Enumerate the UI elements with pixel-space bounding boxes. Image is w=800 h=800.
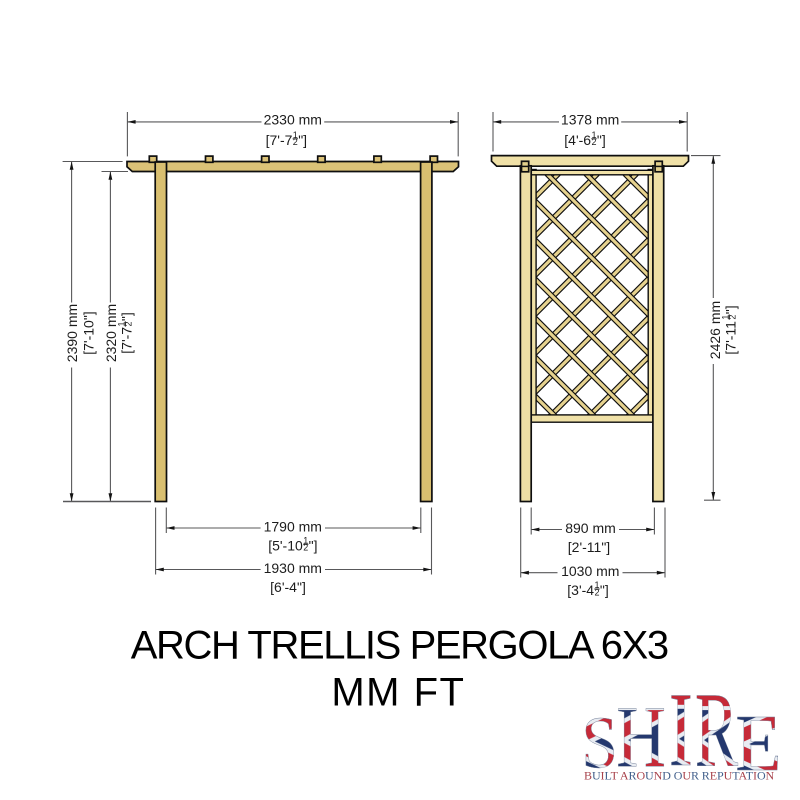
svg-text:[6'-4"]: [6'-4"] bbox=[270, 579, 306, 595]
svg-text:[7'-7: [7'-7 bbox=[118, 327, 134, 354]
svg-text:"]: "] bbox=[722, 305, 738, 314]
svg-text:2: 2 bbox=[124, 321, 134, 326]
svg-text:MM FT: MM FT bbox=[331, 671, 465, 715]
svg-text:2320 mm: 2320 mm bbox=[103, 304, 119, 362]
svg-text:ARCH TRELLIS PERGOLA 6X3: ARCH TRELLIS PERGOLA 6X3 bbox=[131, 624, 668, 668]
svg-text:"]: "] bbox=[118, 312, 134, 321]
svg-text:1378 mm: 1378 mm bbox=[561, 112, 619, 128]
svg-text:1930 mm: 1930 mm bbox=[264, 560, 322, 576]
svg-text:"]: "] bbox=[597, 132, 606, 148]
svg-text:2426 mm: 2426 mm bbox=[707, 301, 723, 359]
svg-text:"]: "] bbox=[600, 582, 609, 598]
svg-text:2390 mm: 2390 mm bbox=[64, 304, 80, 362]
svg-text:"]: "] bbox=[298, 132, 307, 148]
svg-text:2330 mm: 2330 mm bbox=[264, 112, 322, 128]
svg-text:[7'-11: [7'-11 bbox=[722, 321, 738, 355]
svg-text:2: 2 bbox=[594, 587, 599, 597]
svg-text:[2'-11"]: [2'-11"] bbox=[568, 539, 610, 555]
svg-text:1030 mm: 1030 mm bbox=[561, 563, 619, 579]
svg-text:2: 2 bbox=[303, 543, 308, 553]
svg-text:[5'-10: [5'-10 bbox=[268, 537, 303, 553]
svg-text:2: 2 bbox=[591, 137, 596, 147]
svg-text:[4'-6: [4'-6 bbox=[564, 132, 591, 148]
svg-text:BUILT AROUND OUR REPUTATION: BUILT AROUND OUR REPUTATION bbox=[584, 768, 775, 782]
svg-text:2: 2 bbox=[293, 137, 298, 147]
svg-text:890 mm: 890 mm bbox=[565, 520, 616, 536]
svg-text:2: 2 bbox=[728, 315, 738, 320]
svg-text:"]: "] bbox=[309, 537, 318, 553]
svg-text:[7'-7: [7'-7 bbox=[266, 132, 293, 148]
svg-text:1790 mm: 1790 mm bbox=[264, 518, 322, 534]
svg-text:[3'-4: [3'-4 bbox=[567, 582, 594, 598]
svg-text:[7'-10"]: [7'-10"] bbox=[81, 311, 97, 354]
